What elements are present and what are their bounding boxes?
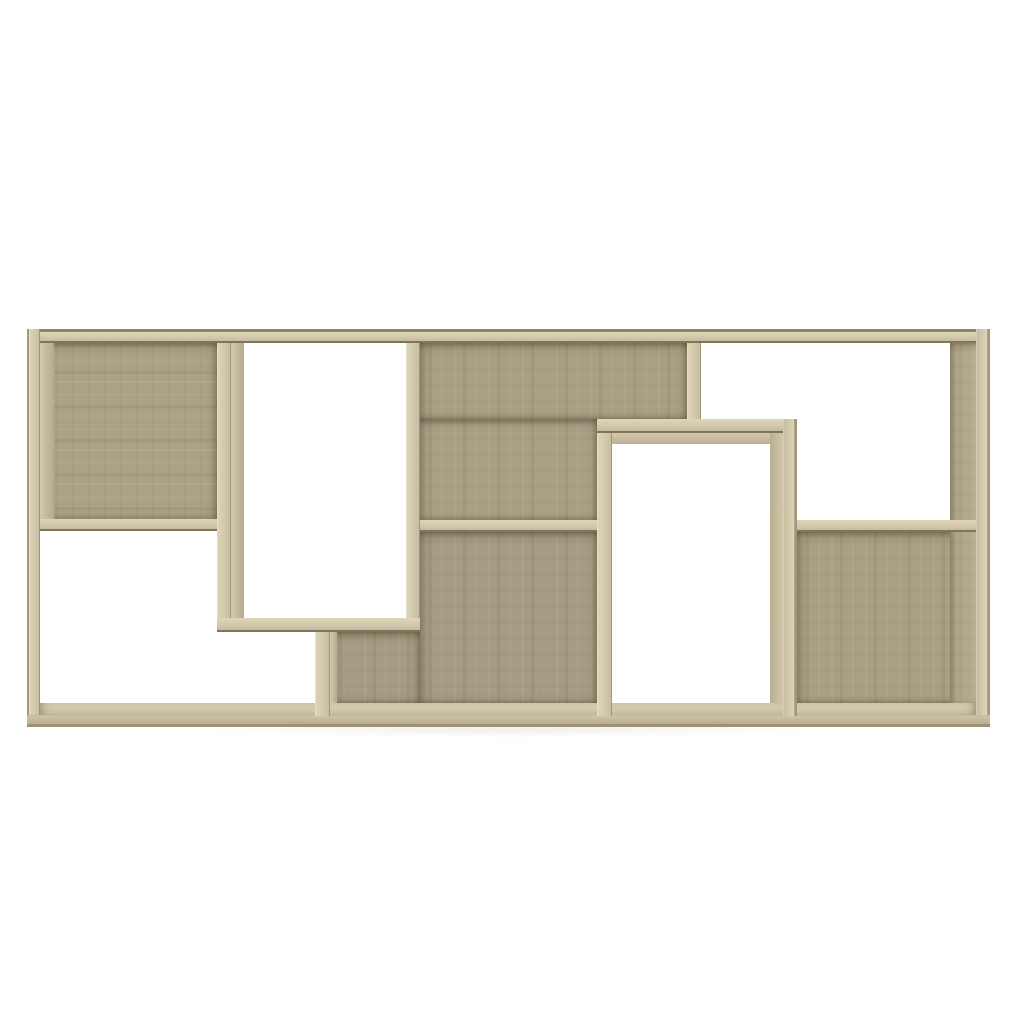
- back-top-left: [40, 343, 217, 519]
- inner-face-divider-bl: [330, 632, 337, 703]
- shelf-top-left: [40, 519, 217, 531]
- back-bottom-middle-main: [420, 532, 597, 703]
- back-top-middle-lower: [420, 419, 597, 520]
- opening-right-box: [612, 433, 770, 703]
- tall-box-left-wall: [217, 343, 231, 632]
- unit-floor-shadow: [45, 727, 975, 741]
- tall-box-bottom: [217, 618, 420, 632]
- bottom-front-panel: [27, 715, 990, 727]
- left-wall: [27, 329, 40, 727]
- back-top-middle-upper: [420, 343, 687, 419]
- inner-face-right-box-top: [612, 433, 783, 444]
- inner-face-left-wall: [40, 343, 54, 519]
- right-box-top: [597, 419, 797, 433]
- shelf-middle: [420, 520, 597, 532]
- right-box-left-wall: [597, 419, 612, 716]
- inner-face-right-box-right: [770, 433, 783, 703]
- opening-bottom-left: [40, 531, 315, 703]
- top-panel: [27, 329, 990, 343]
- opening-tall-left-box: [231, 343, 406, 618]
- right-box-right-wall: [783, 419, 797, 716]
- product-photo-canvas: [0, 0, 1024, 1024]
- tall-box-right-wall: [406, 343, 420, 632]
- right-wall: [976, 329, 990, 727]
- bookshelf: [0, 0, 1024, 1024]
- inner-face-tall-box-left: [231, 343, 244, 618]
- back-bottom-middle-left: [330, 632, 420, 703]
- bottom-panel-top-face: [40, 703, 976, 715]
- divider-top-right: [687, 343, 701, 419]
- divider-bottom-left: [315, 632, 330, 716]
- shelf-right: [797, 520, 976, 532]
